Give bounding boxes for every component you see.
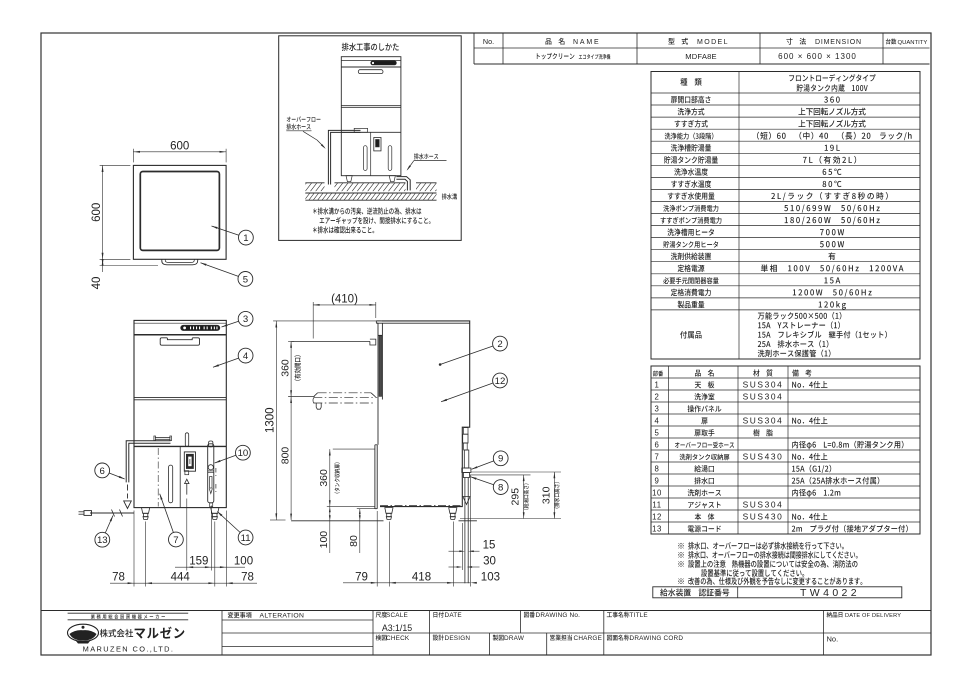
svg-text:DATE OF DELIVERY: DATE OF DELIVERY	[845, 613, 901, 619]
svg-text:360: 360	[280, 359, 292, 377]
svg-text:11: 11	[652, 501, 661, 510]
svg-text:A3:1/15: A3:1/15	[382, 623, 412, 633]
svg-text:7: 7	[655, 453, 660, 462]
svg-text:78: 78	[241, 572, 254, 584]
svg-text:TW4022: TW4022	[800, 587, 860, 599]
svg-text:DRAWING CORD: DRAWING CORD	[630, 635, 684, 642]
svg-text:310: 310	[540, 486, 552, 504]
svg-text:10: 10	[652, 489, 662, 498]
svg-text:3: 3	[655, 405, 660, 414]
svg-text:11: 11	[241, 533, 251, 544]
svg-text:1: 1	[243, 233, 248, 244]
svg-text:7: 7	[173, 535, 178, 546]
svg-text:2: 2	[497, 339, 502, 350]
svg-text:418: 418	[412, 571, 431, 583]
svg-text:4: 4	[655, 417, 660, 426]
svg-text:SUS304: SUS304	[743, 500, 784, 510]
svg-text:295: 295	[510, 488, 522, 506]
svg-text:2: 2	[655, 393, 660, 402]
svg-text:600 × 600 × 1300: 600 × 600 × 1300	[778, 52, 857, 61]
svg-text:MDFA8E: MDFA8E	[685, 52, 717, 61]
svg-text:CHARGE: CHARGE	[574, 635, 603, 642]
svg-text:78: 78	[112, 572, 125, 584]
svg-text:9: 9	[655, 477, 660, 486]
svg-text:No.: No.	[483, 37, 494, 46]
svg-text:15: 15	[483, 540, 496, 552]
svg-text:ALTERATION: ALTERATION	[260, 613, 305, 620]
svg-text:DATE: DATE	[445, 612, 462, 619]
svg-text:5: 5	[655, 429, 660, 438]
svg-text:444: 444	[171, 572, 191, 584]
svg-text:QUANTITY: QUANTITY	[898, 40, 928, 46]
svg-text:SUS430: SUS430	[743, 452, 784, 462]
svg-text:79: 79	[355, 571, 368, 583]
svg-text:SUS430: SUS430	[743, 512, 784, 522]
svg-text:DESIGN: DESIGN	[445, 635, 471, 642]
svg-text:13: 13	[652, 525, 662, 534]
svg-text:80: 80	[348, 535, 360, 547]
svg-text:13: 13	[97, 535, 108, 546]
svg-text:12: 12	[495, 376, 506, 387]
svg-text:8: 8	[498, 483, 503, 494]
svg-text:DRAW: DRAW	[504, 635, 525, 642]
svg-text:103: 103	[481, 571, 500, 583]
svg-text:No.: No.	[827, 635, 839, 644]
svg-text:100: 100	[234, 556, 253, 568]
svg-text:12: 12	[652, 513, 662, 522]
svg-text:NAME: NAME	[573, 39, 600, 46]
svg-text:MODEL: MODEL	[697, 39, 729, 46]
svg-text:40: 40	[91, 277, 103, 290]
svg-text:9: 9	[498, 454, 503, 465]
svg-text:360: 360	[318, 469, 330, 487]
svg-text:5: 5	[243, 274, 248, 285]
svg-text:DIMENSION: DIMENSION	[815, 39, 862, 46]
svg-text:CHECK: CHECK	[386, 635, 410, 642]
svg-text:1300: 1300	[265, 407, 277, 433]
svg-text:MARUZEN CO.,LTD.: MARUZEN CO.,LTD.	[83, 645, 175, 654]
svg-text:TITLE: TITLE	[630, 612, 648, 619]
svg-text:3: 3	[243, 314, 248, 325]
svg-text:159: 159	[189, 556, 208, 568]
svg-text:SUS304: SUS304	[743, 380, 784, 390]
svg-text:100: 100	[318, 531, 330, 549]
svg-text:SCALE: SCALE	[386, 612, 408, 619]
svg-text:SUS304: SUS304	[743, 416, 784, 426]
svg-text:800: 800	[280, 447, 292, 465]
svg-text:600: 600	[170, 140, 189, 152]
svg-text:DRAWING No.: DRAWING No.	[536, 612, 581, 619]
svg-text:600: 600	[91, 203, 103, 222]
svg-text:(410): (410)	[331, 293, 358, 305]
svg-text:10: 10	[238, 448, 249, 459]
svg-text:30: 30	[483, 556, 496, 568]
svg-text:6: 6	[655, 441, 660, 450]
svg-text:1: 1	[655, 381, 660, 390]
svg-text:8: 8	[655, 465, 660, 474]
svg-text:6: 6	[100, 466, 105, 477]
svg-text:SUS304: SUS304	[743, 392, 784, 402]
svg-text:4: 4	[243, 351, 249, 362]
